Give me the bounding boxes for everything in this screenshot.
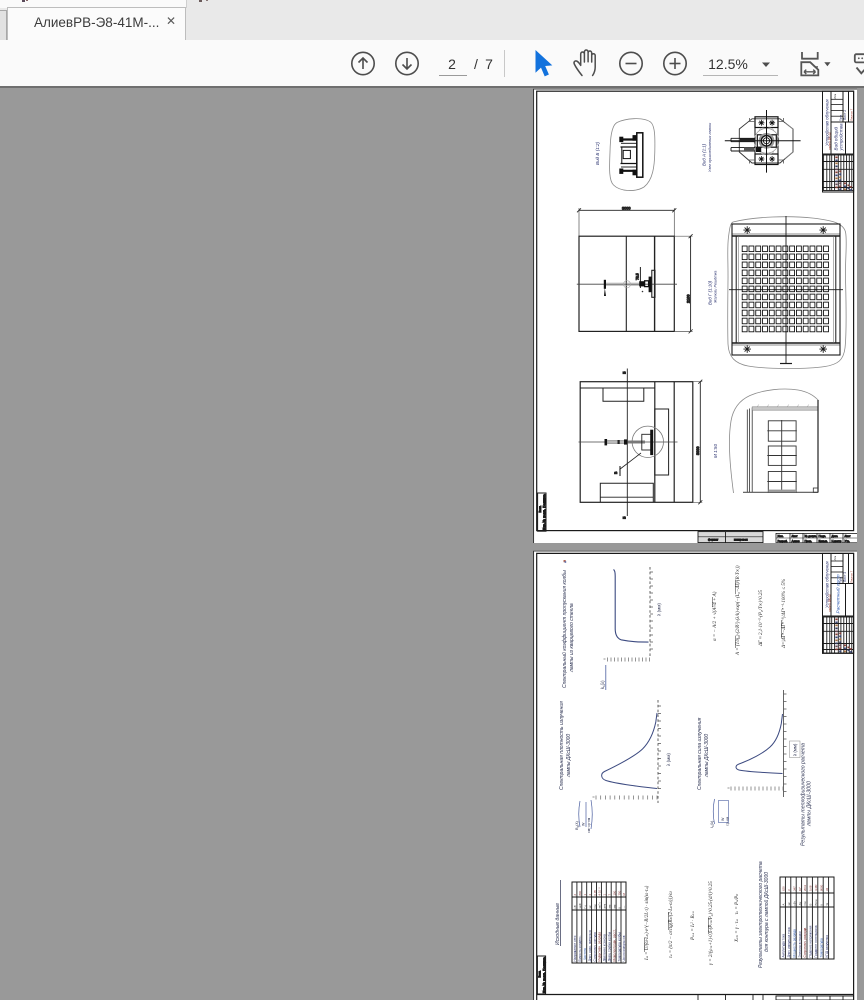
svg-text:γ = 2/(γст+1)·0,6·(Pст/P₀)^0.2: γ = 2/(γст+1)·0,6·(Pст/P₀)^0.25·(d/l)^0.… — [709, 881, 714, 965]
svg-text:Пров.: Пров. — [839, 576, 843, 583]
svg-text:2011: 2011 — [803, 885, 807, 891]
svg-text:Взам.: Взам. — [538, 505, 542, 512]
svg-text:Лист 2: Лист 2 — [843, 110, 847, 120]
svg-text:Вид Г (1:10): Вид Г (1:10) — [708, 280, 713, 305]
svg-text:A = (1/η₀)·(2/R²)·(λ/k)·exp(−(: A = (1/η₀)·(2/R²)·(λ/k)·exp(−(L₀−Δl)/(R·… — [735, 565, 741, 656]
svg-text:Лист 3: Лист 3 — [843, 572, 847, 582]
svg-text:Инв.№ подл. Подпись: Инв.№ подл. Подпись — [542, 957, 546, 993]
svg-text:кВт: кВт — [792, 901, 796, 906]
svg-text:Вид Б (1:2): Вид Б (1:2) — [595, 141, 600, 165]
svg-text:2100: 2100 — [686, 295, 690, 303]
svg-text:Пров.: Пров. — [839, 114, 843, 121]
svg-text:Изм: Изм — [833, 94, 837, 99]
svg-text:Ом: Ом — [593, 904, 597, 908]
svg-text:—: — — [622, 906, 626, 909]
svg-text:Индуктивн. разряда: Индуктивн. разряда — [598, 932, 602, 962]
svg-text:8000: 8000 — [819, 884, 823, 891]
svg-text:лампы из кварцевого стекла: лампы из кварцевого стекла — [569, 603, 575, 673]
svg-text:Листов 7: Листов 7 — [850, 570, 854, 583]
svg-text:Исходные данные: Исходные данные — [555, 903, 561, 945]
svg-text:Напряжение сети: Напряжение сети — [573, 935, 577, 961]
svg-text:Спектральная сила излучения: Спектральная сила излучения — [697, 717, 703, 790]
svg-text:Спектральный коэффициент пропу: Спектральный коэффициент пропускания кол… — [561, 570, 568, 688]
svg-text:347: 347 — [792, 886, 796, 891]
svg-text:см²·ср·нм: см²·ср·нм — [587, 817, 591, 833]
svg-text:Дата: Дата — [832, 534, 839, 538]
svg-text:kλ(λ): kλ(λ) — [600, 680, 606, 689]
svg-text:7: 7 — [485, 56, 493, 72]
svg-text:для контура с лампой ДКсШ-3000: для контура с лампой ДКсШ-3000 — [763, 872, 770, 952]
svg-text:Инв.№ подл. Подпись: Инв.№ подл. Подпись — [542, 494, 546, 530]
svg-text:Спектральная плотность излучен: Спектральная плотность излучения — [559, 701, 565, 790]
svg-text:мм: мм — [612, 905, 616, 909]
svg-text:Длит. импульса тока: Длит. импульса тока — [787, 927, 791, 957]
svg-text:копировал: копировал — [734, 538, 748, 542]
svg-text:Вид А (1:1): Вид А (1:1) — [702, 143, 707, 166]
svg-text:Лист: Лист — [792, 534, 799, 538]
svg-text:Градиент потенциала: Градиент потенциала — [814, 925, 818, 957]
svg-text:α = − A/2 + √(A²/4 + A): α = − A/2 + √(A²/4 + A) — [712, 591, 718, 641]
svg-text:100: 100 — [612, 890, 616, 895]
svg-text:№ докум.: № докум. — [805, 534, 818, 538]
svg-text:Узел присоединения лампы: Узел присоединения лампы — [708, 123, 712, 172]
svg-text:Мощность разряда: Мощность разряда — [792, 929, 796, 958]
svg-text:мкГн: мкГн — [598, 902, 602, 909]
svg-text:лампы ДКсШ-3000: лампы ДКсШ-3000 — [807, 781, 813, 827]
svg-text:Подп.: Подп. — [819, 534, 827, 538]
svg-text:кВ: кВ — [573, 905, 577, 908]
svg-text:4,48²: 4,48² — [814, 885, 818, 891]
svg-text:лампа ДКсШ: лампа ДКсШ — [828, 132, 832, 150]
svg-text:Б: Б — [622, 371, 627, 374]
svg-text:3000: 3000 — [622, 207, 630, 211]
svg-text:78.5: 78.5 — [636, 273, 640, 280]
svg-text:ср·нм: ср·нм — [726, 816, 730, 826]
svg-text:Pа.я = Iя² · Rа.я: Pа.я = Iя² · Rа.я — [690, 911, 696, 941]
svg-text:формат: формат — [708, 538, 719, 542]
svg-text:W: W — [721, 817, 725, 821]
svg-text:лампы ДКсШ-3000: лампы ДКсШ-3000 — [704, 734, 710, 778]
svg-text:λ (мм): λ (мм) — [657, 603, 662, 616]
svg-text:Температура: Температура — [819, 938, 823, 958]
svg-text:Число импульсов: Число импульсов — [622, 935, 626, 961]
svg-text:Давление ксенона: Давление ксенона — [603, 934, 607, 961]
svg-text:Δ=|ΔΓⁿ−ΔΓⁿ⁻¹|/ΔΓⁿ⁻¹·100% ≤ 5%: Δ=|ΔΓⁿ−ΔΓⁿ⁻¹|/ΔΓⁿ⁻¹·100% ≤ 5% — [781, 579, 787, 649]
svg-text:ΔΓ ≈ 2,1·10⁻⁵·(P₀/T∞)^0.25: ΔΓ ≈ 2,1·10⁻⁵·(P₀/T∞)^0.25 — [758, 590, 764, 647]
svg-text:λ (мм): λ (мм) — [793, 743, 798, 756]
svg-text:лампы ДКсШ-3000: лампы ДКсШ-3000 — [566, 734, 572, 778]
svg-text:λ (мм): λ (мм) — [666, 753, 671, 766]
svg-text:Б: Б — [622, 516, 627, 519]
svg-text:2: 2 — [448, 56, 456, 72]
svg-text:А: А — [782, 904, 786, 906]
svg-text:800: 800 — [578, 890, 582, 895]
svg-text:0,68: 0,68 — [809, 885, 813, 891]
svg-text:Xст = γ · τм τп = Pп/PΣ: Xст = γ · τм τп = Pп/PΣ — [735, 894, 740, 943]
svg-text:Жалюзи Решётка: Жалюзи Решётка — [714, 271, 718, 304]
svg-text:620: 620 — [782, 886, 786, 891]
svg-text:устройства: устройства — [838, 123, 844, 151]
svg-text:12.5%: 12.5% — [708, 56, 748, 72]
svg-text:Изм.: Изм. — [778, 534, 784, 538]
svg-text:4·10⁻²: 4·10⁻² — [598, 887, 602, 895]
svg-text:мкФ: мкФ — [578, 903, 582, 908]
svg-text:750: 750 — [617, 890, 621, 895]
svg-text:Сопротивл. разряда: Сопротивл. разряда — [803, 927, 807, 957]
svg-text:атм: атм — [603, 904, 607, 909]
svg-text:мм: мм — [608, 905, 612, 909]
svg-text:Амплитуда тока: Амплитуда тока — [782, 934, 786, 958]
svg-text:34: 34 — [825, 887, 829, 891]
svg-text:Гц: Гц — [583, 905, 587, 909]
svg-text:/: / — [474, 56, 478, 72]
svg-text:Емкость конденс.: Емкость конденс. — [578, 935, 582, 961]
svg-text:Диам. трубки колбы: Диам. трубки колбы — [608, 931, 612, 961]
svg-text:Межэлектродн. расст.: Межэлектродн. расст. — [612, 929, 616, 961]
svg-text:М 1:50: М 1:50 — [713, 444, 718, 458]
svg-text:τи = (π/2 − arctg(RΣ/(2·LΣ·ω)): τи = (π/2 − arctg(RΣ/(2·LΣ·ω)))/ω — [669, 891, 674, 958]
svg-text:Температура колбы: Температура колбы — [617, 931, 621, 961]
svg-text:Энергия вспышки: Энергия вспышки — [798, 931, 802, 957]
svg-text:В: В — [614, 471, 618, 474]
svg-text:Взам.: Взам. — [538, 970, 542, 977]
svg-text:Ом: Ом — [803, 901, 807, 905]
svg-text:Падение напряжения: Падение напряжения — [809, 925, 813, 957]
svg-text:3000: 3000 — [696, 447, 700, 455]
svg-text:лампа ДКсШ: лампа ДКсШ — [828, 594, 832, 612]
svg-text:Сопротивл. контура: Сопротивл. контура — [593, 932, 597, 962]
svg-text:Лист: Лист — [845, 534, 852, 538]
svg-text:В/см: В/см — [814, 899, 818, 905]
svg-text:Листов 7: Листов 7 — [850, 108, 854, 121]
svg-text:В: В — [809, 904, 813, 906]
svg-text:0,05: 0,05 — [593, 890, 597, 896]
svg-text:Длит. разр. импульса: Длит. разр. импульса — [588, 930, 592, 962]
svg-text:Iм = U/(ω·LΣ)·e^(−R/2L·τ) · si: Iм = U/(ω·LΣ)·e^(−R/2L·τ) · sin(ω·τм) — [645, 885, 650, 961]
svg-text:Дж: Дж — [798, 902, 802, 906]
svg-text:Частота: Частота — [583, 948, 587, 960]
svg-text:W: W — [582, 822, 586, 826]
svg-text:КПД излучения: КПД излучения — [825, 935, 829, 958]
svg-text:Изм: Изм — [833, 556, 837, 561]
